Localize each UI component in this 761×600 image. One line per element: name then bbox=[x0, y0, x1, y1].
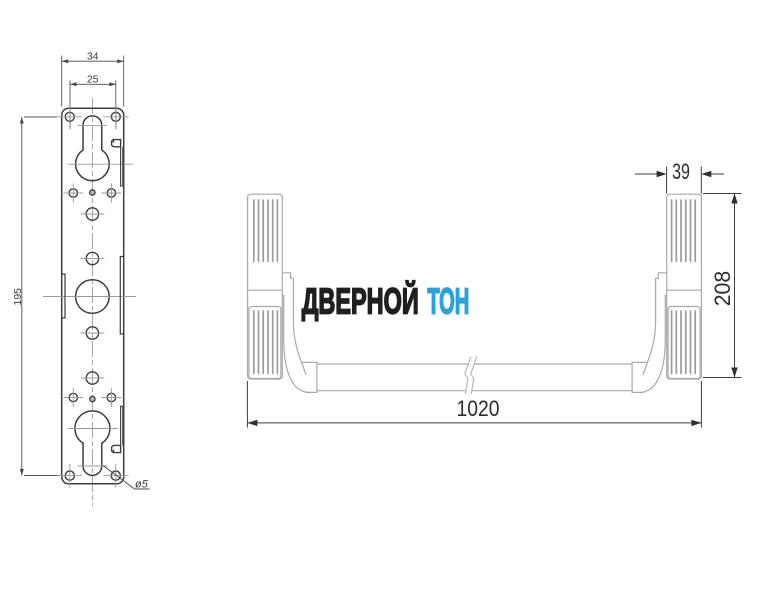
svg-text:195: 195 bbox=[12, 288, 24, 306]
svg-text:208: 208 bbox=[710, 271, 735, 307]
svg-text:ТОН: ТОН bbox=[427, 281, 469, 322]
svg-text:ДВЕРНОЙ: ДВЕРНОЙ bbox=[302, 280, 419, 322]
svg-text:39: 39 bbox=[672, 159, 690, 184]
svg-text:1020: 1020 bbox=[457, 396, 500, 421]
svg-text:ø5: ø5 bbox=[135, 479, 149, 491]
svg-text:34: 34 bbox=[87, 51, 99, 63]
svg-text:25: 25 bbox=[87, 74, 99, 86]
